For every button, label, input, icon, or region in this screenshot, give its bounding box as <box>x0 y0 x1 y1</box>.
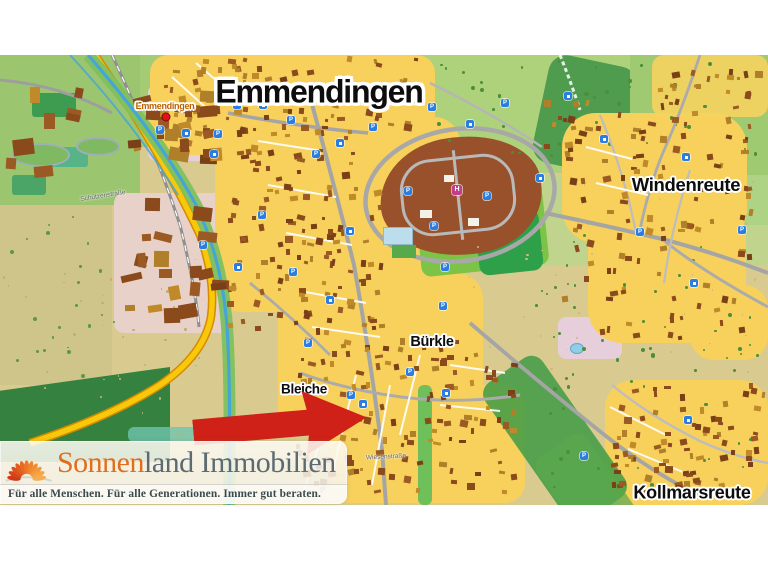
building <box>479 419 485 426</box>
building <box>414 366 419 372</box>
bus-stop-icon <box>336 139 344 147</box>
building <box>261 260 268 265</box>
building <box>341 229 345 236</box>
building <box>475 472 481 476</box>
bus-stop-icon <box>682 153 690 161</box>
building <box>330 361 334 367</box>
building <box>447 355 454 360</box>
building <box>747 253 753 259</box>
building <box>720 320 724 326</box>
building <box>753 446 758 453</box>
building <box>327 229 332 235</box>
building <box>572 100 579 107</box>
building <box>30 87 40 103</box>
building <box>624 417 632 424</box>
building <box>700 407 704 414</box>
building <box>321 217 324 220</box>
bus-stop-icon <box>564 92 572 100</box>
building <box>746 449 752 455</box>
building <box>709 218 714 223</box>
building <box>310 256 314 262</box>
building <box>625 256 633 261</box>
bus-stop-icon <box>346 227 354 235</box>
building <box>400 338 404 344</box>
building <box>680 394 685 401</box>
building <box>285 134 290 137</box>
building <box>464 415 472 421</box>
building <box>350 437 357 441</box>
building <box>467 483 475 490</box>
building <box>581 178 586 185</box>
building <box>713 435 718 439</box>
building <box>459 440 466 443</box>
building <box>492 377 498 382</box>
building <box>297 170 301 175</box>
sun-logo-icon <box>5 444 53 484</box>
building <box>354 187 358 191</box>
building <box>584 276 589 283</box>
building <box>263 197 269 203</box>
building <box>368 262 374 268</box>
building <box>286 219 294 223</box>
building <box>74 87 84 98</box>
bus-stop-icon <box>536 174 544 182</box>
building <box>277 311 283 318</box>
bus-stop-icon <box>442 389 450 397</box>
parking-icon: P <box>258 211 266 219</box>
brand-banner: Sonnenland Immobilien Für alle Menschen.… <box>0 441 347 504</box>
building <box>311 224 317 230</box>
building <box>703 282 710 288</box>
building <box>327 190 332 198</box>
city-label-emmendingen: Emmendingen <box>136 101 195 111</box>
building <box>743 71 748 79</box>
building <box>278 288 281 292</box>
building <box>617 436 622 441</box>
parking-icon: P <box>501 99 509 107</box>
building <box>259 288 264 295</box>
building <box>715 417 723 422</box>
parking-icon: P <box>289 268 297 276</box>
bus-stop-icon <box>466 120 474 128</box>
building <box>360 468 364 471</box>
building <box>566 157 573 161</box>
building <box>738 251 746 257</box>
parking-icon: P <box>404 187 412 195</box>
brand-row: Sonnenland Immobilien <box>0 441 347 484</box>
parking-icon: P <box>406 368 414 376</box>
building <box>369 215 374 221</box>
building <box>425 418 432 425</box>
building <box>647 215 653 222</box>
building <box>145 198 160 211</box>
building <box>654 467 659 473</box>
building <box>558 116 562 120</box>
building <box>323 376 328 381</box>
building <box>337 117 345 121</box>
building <box>432 429 437 433</box>
building <box>286 249 290 255</box>
building <box>741 150 749 154</box>
building <box>388 474 395 480</box>
page: PPPPPPPPPPPPPPPPPPPPPPH EmmendingenEmmen… <box>0 0 768 567</box>
building <box>607 268 610 274</box>
building <box>562 295 569 302</box>
building <box>253 167 260 171</box>
building <box>722 401 728 408</box>
building <box>570 126 575 131</box>
building <box>465 357 469 361</box>
building <box>640 136 645 141</box>
building <box>742 390 749 397</box>
map: PPPPPPPPPPPPPPPPPPPPPPH EmmendingenEmmen… <box>0 55 768 505</box>
building <box>544 144 549 149</box>
building <box>180 139 190 152</box>
building <box>301 297 308 303</box>
building <box>630 441 637 448</box>
building <box>497 417 501 423</box>
hospital-building <box>468 218 479 226</box>
building <box>229 286 237 292</box>
building <box>369 319 376 323</box>
building <box>170 87 174 94</box>
brand-name-accent: Sonnen <box>57 446 144 479</box>
map-title: Emmendingen <box>215 74 422 111</box>
building <box>745 193 750 199</box>
hospital-building <box>444 175 454 182</box>
parking-icon: P <box>369 123 377 131</box>
building <box>374 115 379 121</box>
district-label-windenreute: Windenreute <box>632 174 741 196</box>
building <box>277 241 283 247</box>
building <box>235 68 241 73</box>
building <box>596 126 602 131</box>
building <box>492 370 496 376</box>
building <box>670 317 675 323</box>
building <box>611 482 616 488</box>
building <box>614 455 618 459</box>
building <box>471 428 474 434</box>
sports-court <box>383 227 413 245</box>
building <box>678 335 682 339</box>
building <box>322 125 328 129</box>
building <box>274 190 279 195</box>
building <box>607 210 614 214</box>
parking-icon: P <box>304 339 312 347</box>
building <box>6 158 17 170</box>
building <box>463 421 468 425</box>
building <box>165 128 179 141</box>
building <box>660 135 667 142</box>
building <box>282 124 286 130</box>
building <box>388 122 395 126</box>
building <box>636 154 644 159</box>
building <box>729 68 733 74</box>
building <box>750 387 757 394</box>
bus-stop-icon <box>684 416 692 424</box>
building <box>690 69 696 76</box>
building <box>301 358 304 361</box>
building <box>267 189 273 192</box>
building <box>137 253 147 268</box>
parking-icon: P <box>441 263 449 271</box>
parking-icon: P <box>312 150 320 158</box>
building <box>416 488 421 494</box>
building <box>177 302 197 319</box>
parking-icon: P <box>287 116 295 124</box>
hospital-building <box>420 210 432 218</box>
bus-stop-icon <box>326 296 334 304</box>
sports-pitch <box>392 245 416 258</box>
bus-stop-icon <box>600 135 608 143</box>
building <box>599 328 604 335</box>
building <box>192 78 199 85</box>
parking-icon: P <box>636 228 644 236</box>
building <box>376 62 382 67</box>
building <box>301 125 309 131</box>
building <box>663 459 669 463</box>
building <box>157 134 164 139</box>
building <box>332 351 337 357</box>
building <box>303 194 310 200</box>
parking-icon: P <box>483 192 491 200</box>
building <box>250 159 256 163</box>
building <box>159 269 172 278</box>
building <box>703 426 711 433</box>
building <box>190 281 202 296</box>
building <box>383 437 387 444</box>
building <box>255 326 261 331</box>
parking-icon: P <box>580 452 588 460</box>
building <box>448 436 452 440</box>
building <box>379 263 384 270</box>
building <box>503 422 510 429</box>
building <box>717 422 723 426</box>
building <box>544 100 552 107</box>
building <box>256 273 260 280</box>
building <box>748 462 753 467</box>
building <box>633 332 640 338</box>
building <box>727 74 734 80</box>
building <box>366 382 370 388</box>
building <box>661 236 666 241</box>
building <box>614 470 621 474</box>
building <box>692 111 698 116</box>
building <box>242 57 247 62</box>
building <box>612 268 616 274</box>
building <box>173 70 180 74</box>
building <box>364 347 369 353</box>
building <box>619 481 626 486</box>
building <box>228 59 236 65</box>
parking-icon: P <box>199 241 207 249</box>
building <box>266 166 271 172</box>
building <box>633 457 637 461</box>
building <box>502 490 508 494</box>
bus-stop-icon <box>182 129 190 137</box>
building <box>125 305 135 312</box>
building <box>342 172 350 180</box>
building <box>297 255 301 260</box>
building <box>323 330 328 336</box>
building <box>154 251 170 267</box>
building <box>218 66 222 72</box>
building <box>613 443 619 450</box>
building <box>626 322 633 327</box>
building <box>664 386 671 389</box>
building <box>345 351 349 358</box>
parking-icon: P <box>428 103 436 111</box>
building <box>602 159 608 163</box>
building <box>252 216 256 220</box>
building <box>407 440 414 446</box>
building <box>241 237 246 241</box>
building <box>621 175 625 180</box>
building <box>369 411 373 416</box>
bus-stop-icon <box>234 263 242 271</box>
building <box>725 116 731 124</box>
building <box>403 123 412 131</box>
hospital-icon: H <box>452 185 462 195</box>
building <box>264 115 269 120</box>
bus-stop-icon <box>210 150 218 158</box>
bus-stop-icon <box>359 400 367 408</box>
building <box>633 156 637 160</box>
building <box>439 462 447 468</box>
building <box>297 373 302 379</box>
building <box>142 234 151 242</box>
district-label-kollmarsreute: Kollmarsreute <box>633 483 750 504</box>
building <box>12 138 35 156</box>
parking-icon: P <box>439 302 447 310</box>
building <box>34 165 54 177</box>
building <box>451 480 457 485</box>
building <box>382 346 389 352</box>
building <box>728 425 734 429</box>
building <box>653 387 657 391</box>
building <box>511 393 517 398</box>
parking-icon: P <box>347 391 355 399</box>
building <box>748 456 753 461</box>
building <box>283 183 290 190</box>
building <box>510 409 516 416</box>
building <box>44 113 55 129</box>
building <box>657 88 662 93</box>
building <box>669 101 674 105</box>
building <box>326 251 332 255</box>
building <box>657 272 662 277</box>
building <box>587 260 594 266</box>
building <box>347 299 355 306</box>
parking-icon: P <box>214 130 222 138</box>
parking-icon: P <box>430 222 438 230</box>
building <box>228 218 233 223</box>
building <box>227 301 233 307</box>
building <box>349 162 353 165</box>
building <box>378 467 386 474</box>
building <box>437 419 443 424</box>
building <box>486 405 490 410</box>
building <box>361 279 366 286</box>
building <box>680 438 688 445</box>
parking-icon: P <box>738 226 746 234</box>
city-marker-dot <box>162 113 171 122</box>
brand-name: Sonnenland Immobilien <box>57 443 336 483</box>
building <box>128 139 141 148</box>
building <box>285 236 293 243</box>
building <box>194 130 202 136</box>
building <box>706 75 710 81</box>
building <box>672 116 680 123</box>
building <box>631 134 636 139</box>
building <box>692 423 697 427</box>
building <box>361 260 367 267</box>
building <box>315 238 323 246</box>
building <box>302 240 306 245</box>
building <box>192 206 212 222</box>
parking-icon: P <box>156 126 164 134</box>
building <box>678 229 685 232</box>
brand-tagline: Für alle Menschen. Für alle Generationen… <box>0 484 347 504</box>
building <box>268 313 273 316</box>
building <box>302 229 306 234</box>
bus-stop-icon <box>690 279 698 287</box>
building <box>644 474 653 482</box>
building <box>251 145 259 153</box>
building <box>349 194 356 201</box>
building <box>270 257 276 263</box>
building <box>404 435 408 440</box>
building <box>662 165 666 170</box>
building <box>681 133 686 139</box>
building <box>200 67 206 74</box>
building <box>373 189 382 196</box>
building <box>575 138 582 143</box>
building <box>202 59 209 65</box>
building <box>668 443 672 447</box>
building <box>616 233 622 240</box>
building <box>679 316 683 321</box>
building <box>410 431 416 437</box>
building <box>659 463 666 466</box>
building <box>565 142 574 149</box>
building <box>622 430 627 437</box>
building <box>431 357 439 361</box>
building <box>432 365 440 371</box>
building <box>680 406 687 412</box>
building <box>327 185 333 191</box>
building <box>470 379 475 386</box>
building <box>375 290 381 296</box>
building <box>617 112 621 119</box>
building <box>346 460 354 466</box>
building <box>354 469 360 474</box>
building <box>510 428 517 433</box>
building <box>366 274 372 281</box>
building <box>271 132 277 137</box>
building <box>443 420 450 425</box>
building <box>408 355 412 361</box>
district-label-buerkle: Bürkle <box>410 334 453 350</box>
building <box>377 205 381 211</box>
building <box>665 432 671 436</box>
building <box>338 307 344 313</box>
building <box>754 71 762 78</box>
building <box>367 480 371 485</box>
building <box>453 369 458 375</box>
building <box>681 221 688 228</box>
building <box>341 344 347 349</box>
